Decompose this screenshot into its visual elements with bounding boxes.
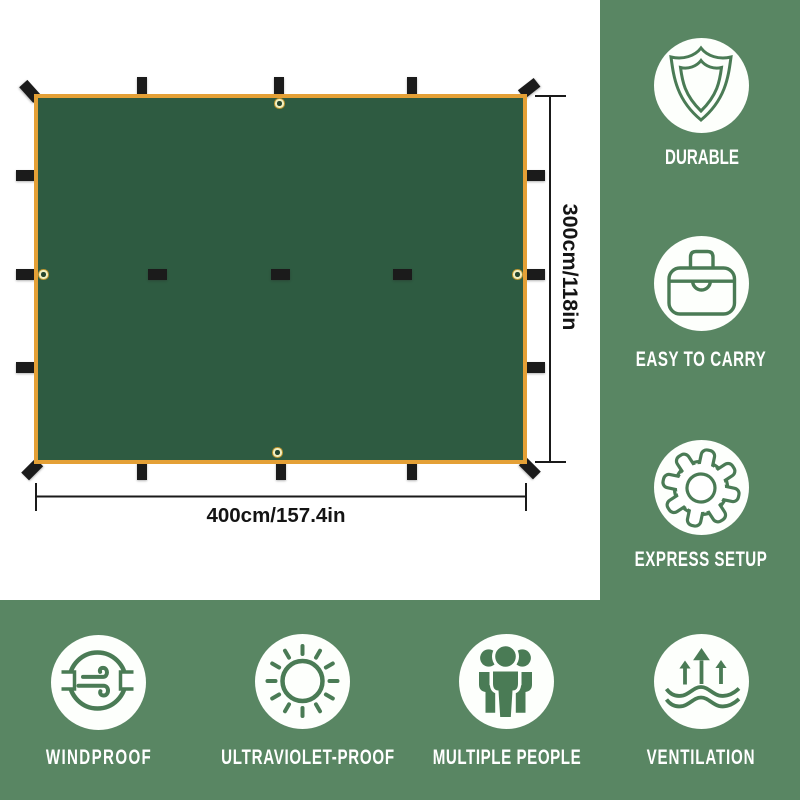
svg-text:300cm/118in: 300cm/118in	[558, 204, 582, 331]
svg-text:400cm/157.4in: 400cm/157.4in	[206, 504, 345, 527]
